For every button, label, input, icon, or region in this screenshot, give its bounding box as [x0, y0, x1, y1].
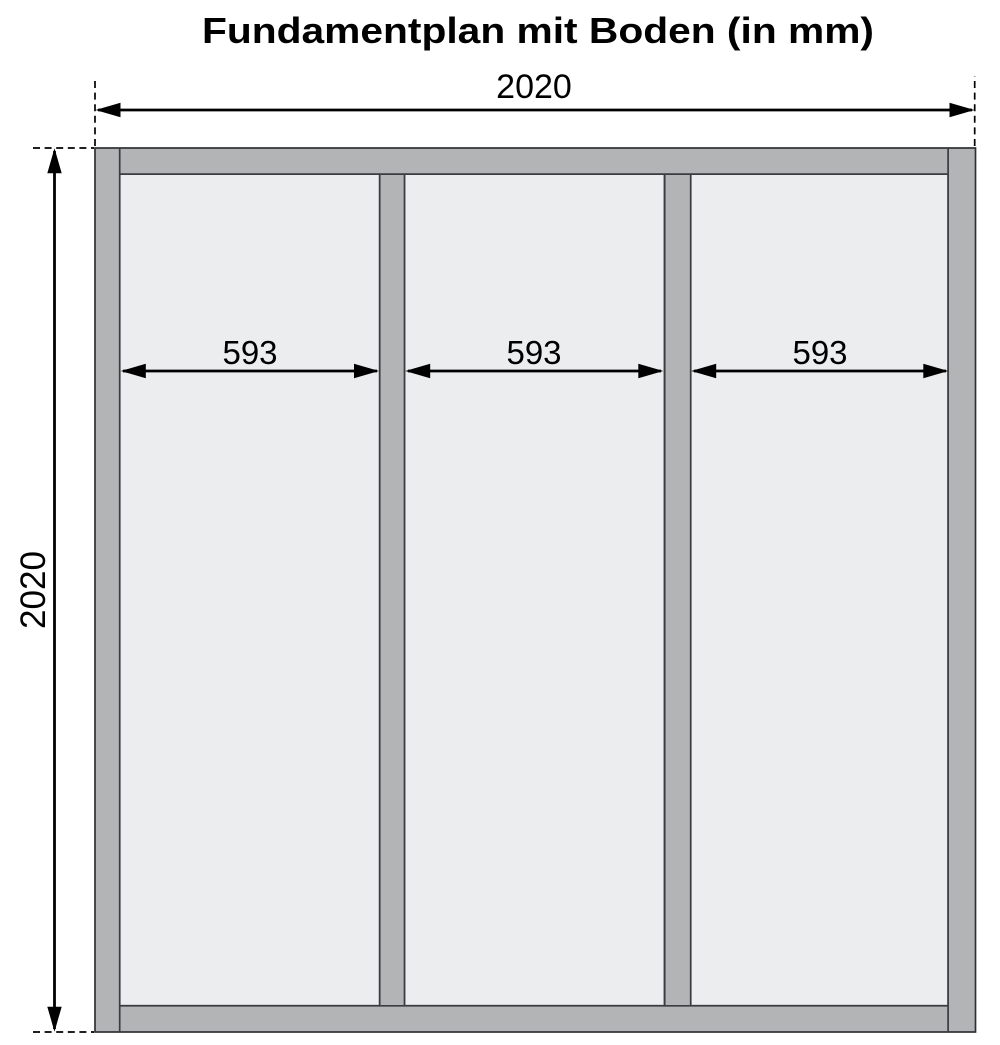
svg-text:593: 593 [792, 334, 847, 371]
svg-text:2020: 2020 [496, 68, 572, 106]
svg-text:593: 593 [506, 334, 561, 371]
svg-text:Fundamentplan mit Boden (in mm: Fundamentplan mit Boden (in mm) [202, 10, 874, 51]
svg-text:2020: 2020 [14, 551, 53, 629]
svg-text:593: 593 [222, 334, 277, 371]
